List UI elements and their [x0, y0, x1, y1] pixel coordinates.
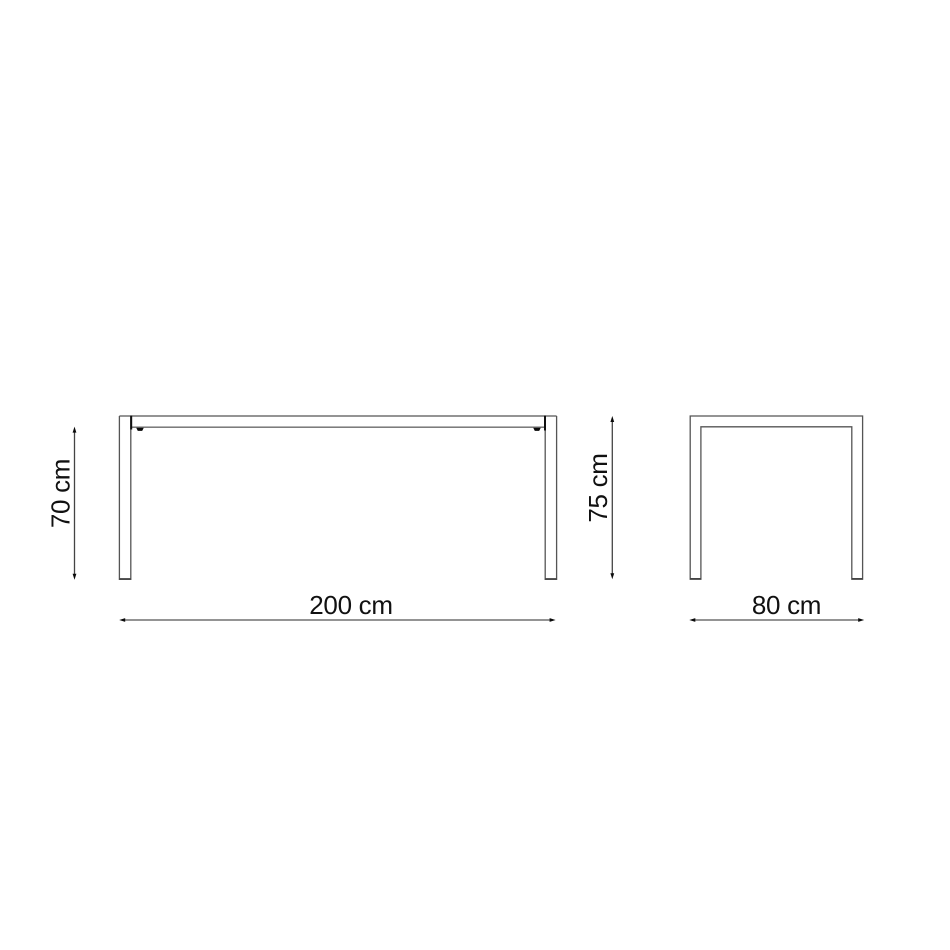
svg-text:200 cm: 200 cm [309, 590, 392, 620]
svg-text:80 cm: 80 cm [752, 590, 821, 620]
svg-text:70 cm: 70 cm [46, 459, 76, 528]
svg-text:75 cm: 75 cm [583, 453, 613, 522]
